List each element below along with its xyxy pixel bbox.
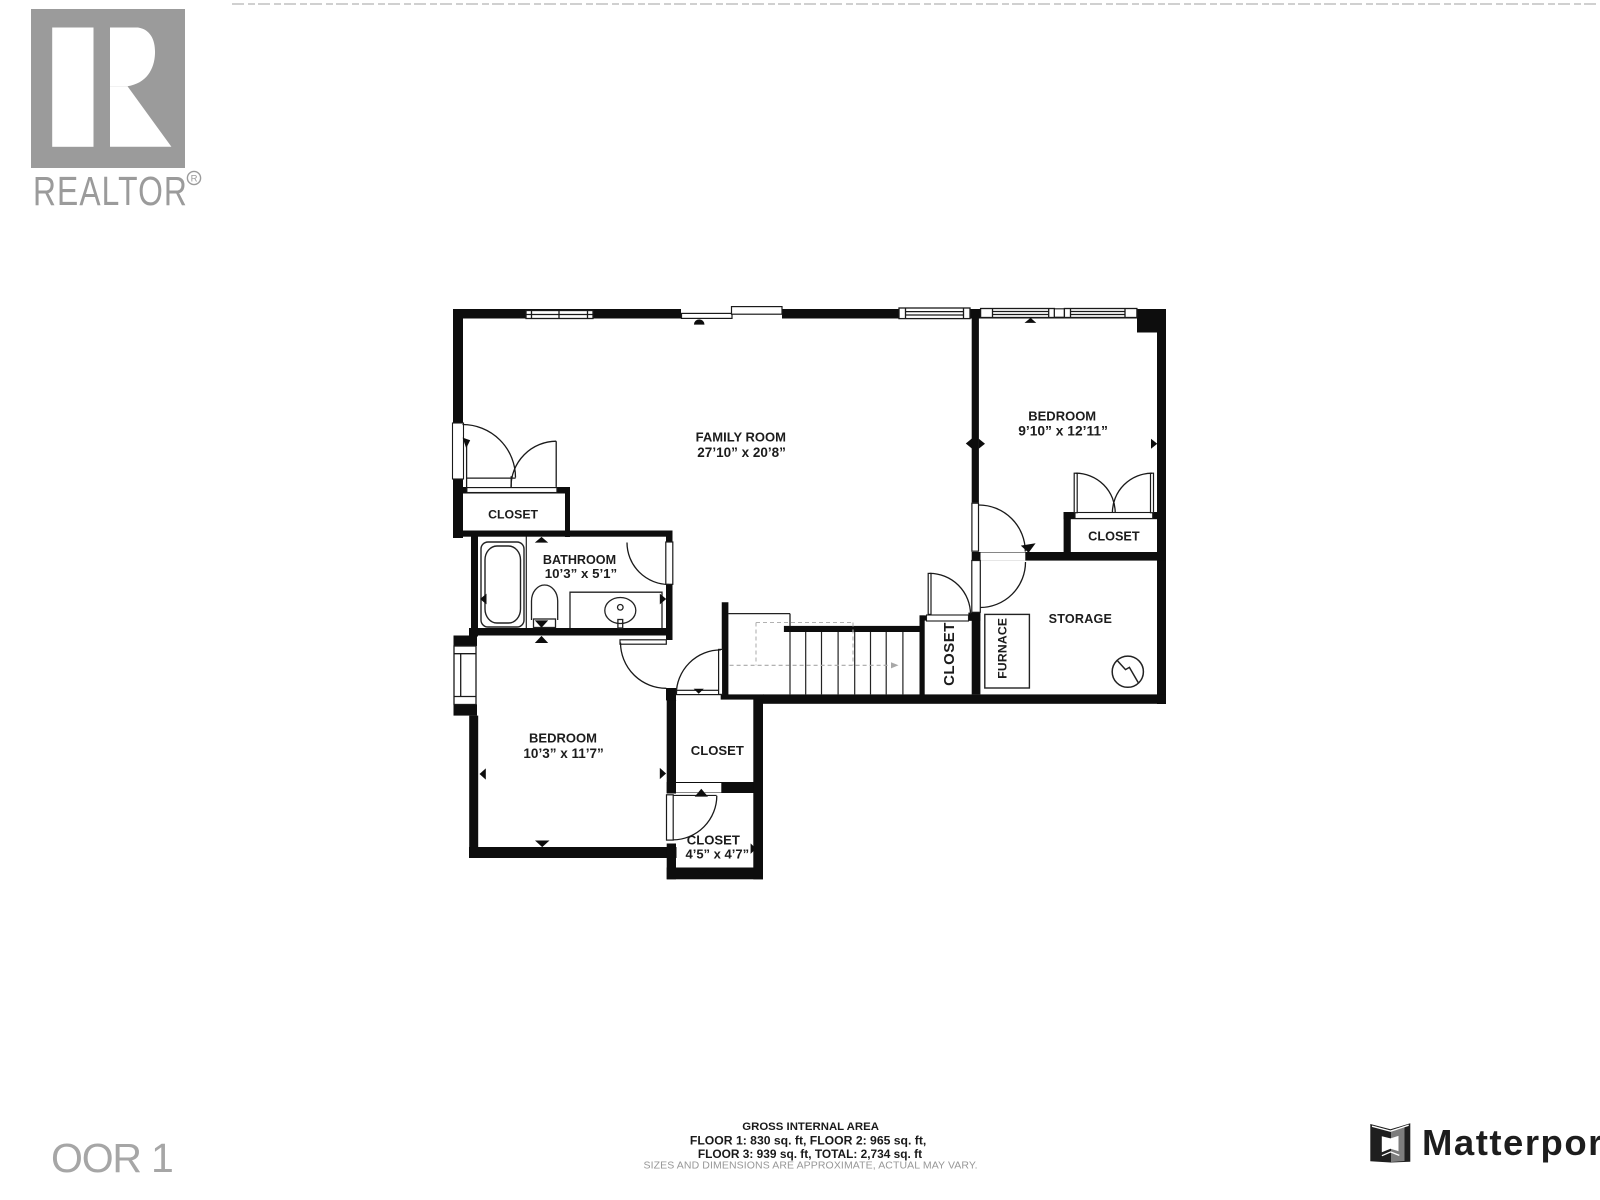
svg-text:BEDROOM: BEDROOM	[529, 731, 597, 746]
svg-text:R: R	[191, 173, 198, 184]
svg-text:9’10” x 12’11”: 9’10” x 12’11”	[1018, 424, 1108, 439]
svg-text:10’3” x 11’7”: 10’3” x 11’7”	[523, 746, 603, 761]
svg-text:BATHROOM: BATHROOM	[543, 553, 616, 567]
svg-text:CLOSET: CLOSET	[1088, 530, 1140, 544]
svg-text:27’10” x 20’8”: 27’10” x 20’8”	[697, 445, 786, 460]
svg-text:FLOOR 1: 830 sq. ft, FLOOR 2:: FLOOR 1: 830 sq. ft, FLOOR 2: 965 sq. ft…	[690, 1133, 926, 1147]
svg-text:FURNACE: FURNACE	[996, 618, 1010, 679]
svg-text:CLOSET: CLOSET	[488, 508, 538, 522]
svg-text:OOR 1: OOR 1	[51, 1135, 173, 1181]
svg-text:Matterport: Matterport	[1422, 1122, 1600, 1163]
svg-text:CLOSET: CLOSET	[691, 743, 744, 758]
svg-text:BEDROOM: BEDROOM	[1028, 408, 1096, 423]
svg-text:4’5” x 4’7”: 4’5” x 4’7”	[685, 846, 749, 861]
svg-text:FAMILY ROOM: FAMILY ROOM	[696, 429, 786, 444]
svg-text:10’3” x 5’1”: 10’3” x 5’1”	[545, 566, 617, 581]
svg-text:CLOSET: CLOSET	[941, 622, 958, 686]
svg-text:CLOSET: CLOSET	[687, 833, 740, 848]
svg-text:STORAGE: STORAGE	[1049, 612, 1112, 626]
svg-text:SIZES AND DIMENSIONS ARE APPRO: SIZES AND DIMENSIONS ARE APPROXIMATE, AC…	[644, 1160, 978, 1172]
svg-text:GROSS INTERNAL AREA: GROSS INTERNAL AREA	[742, 1121, 879, 1133]
